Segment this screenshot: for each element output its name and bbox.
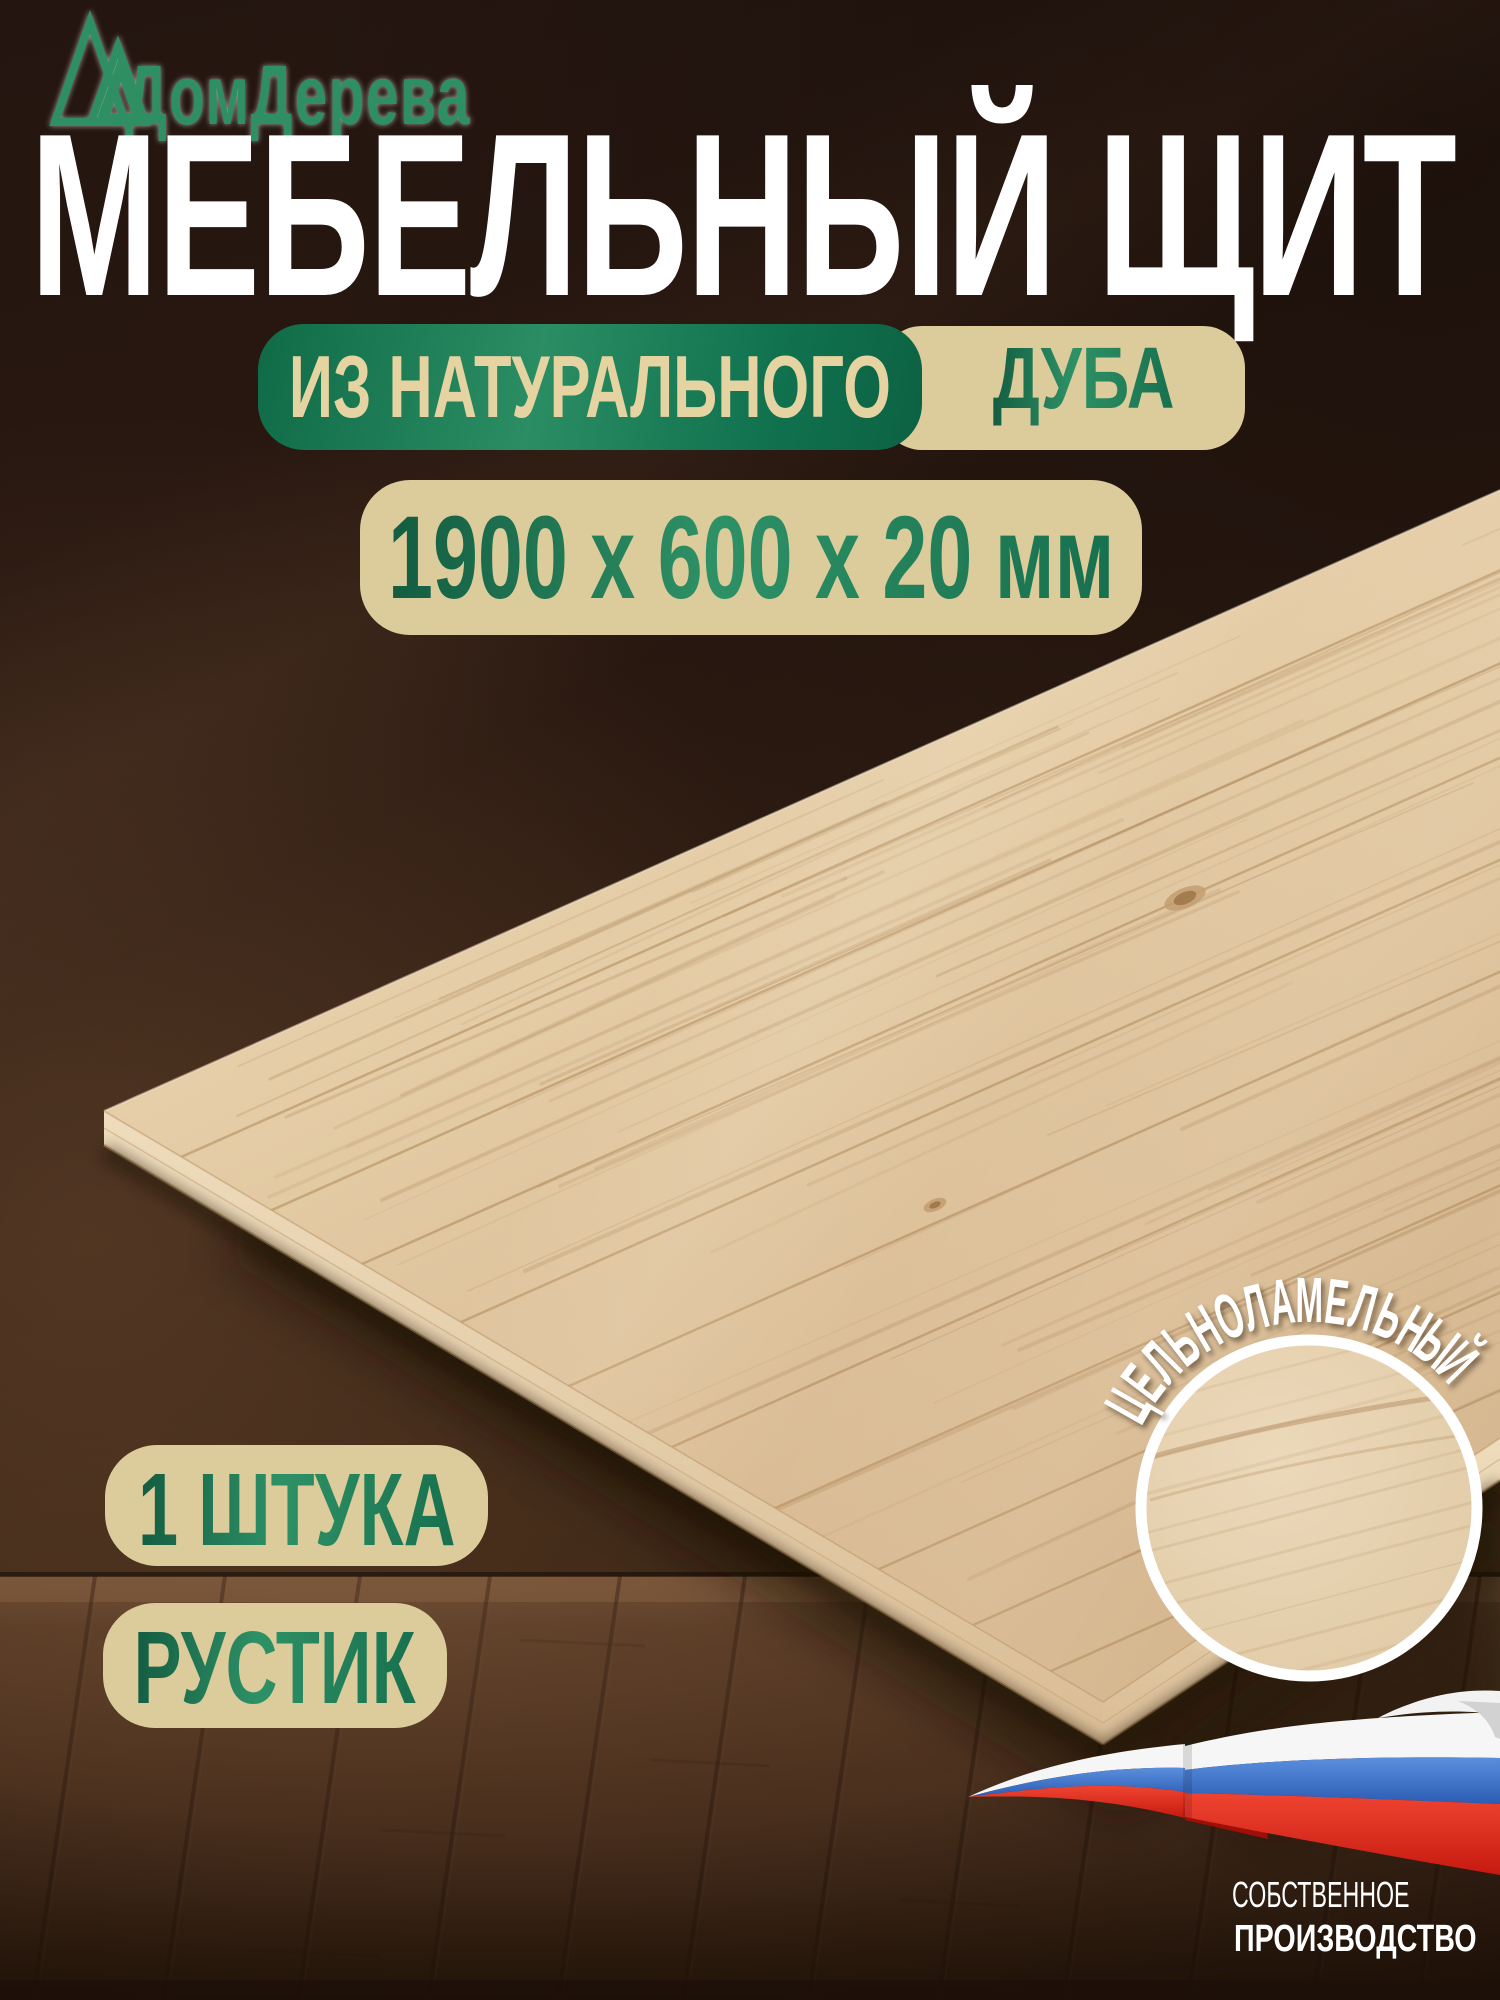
svg-text:М: М [1295, 1264, 1323, 1336]
